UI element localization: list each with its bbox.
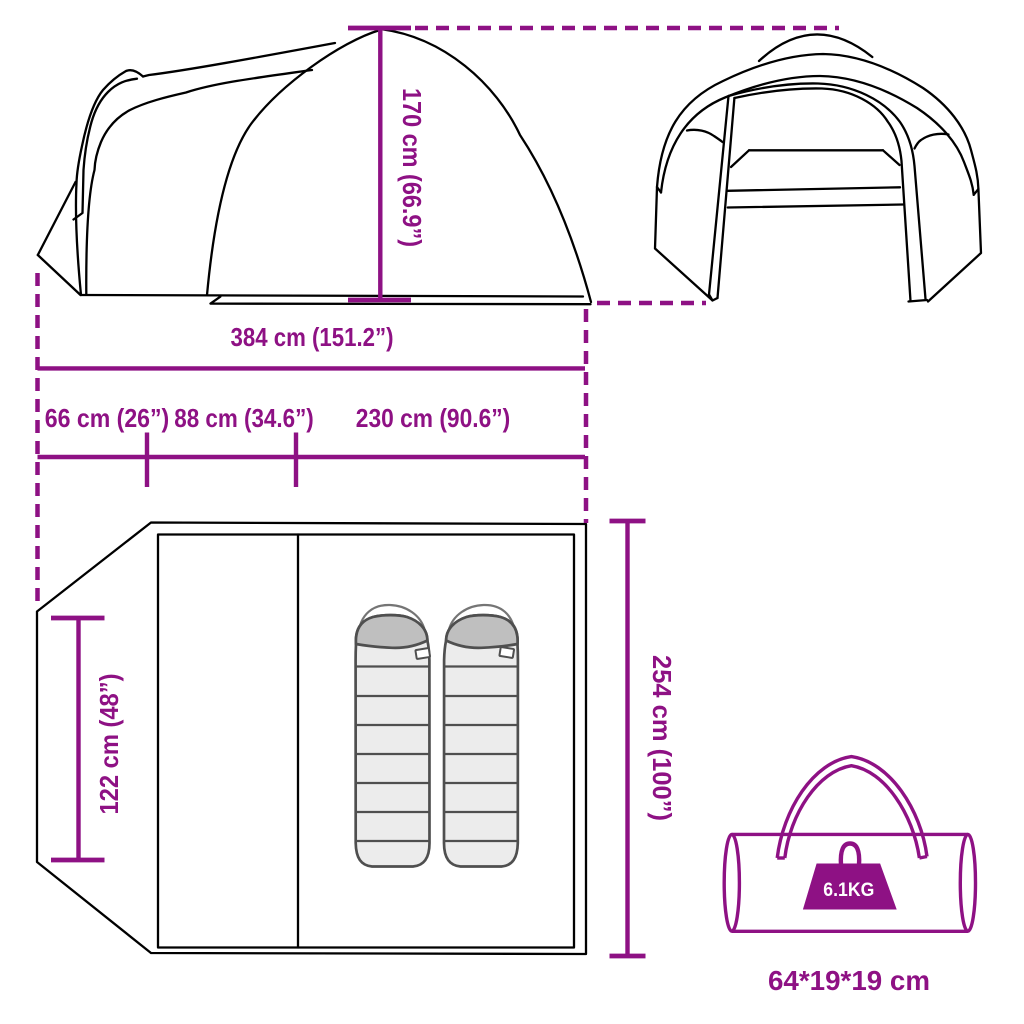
svg-text:254 cm (100”): 254 cm (100”) [647, 655, 677, 821]
svg-text:384 cm (151.2”): 384 cm (151.2”) [231, 322, 394, 352]
svg-text:64*19*19 cm: 64*19*19 cm [768, 965, 930, 996]
svg-text:170 cm (66.9”): 170 cm (66.9”) [397, 88, 427, 247]
svg-text:122 cm (48”): 122 cm (48”) [94, 674, 124, 815]
svg-text:88 cm (34.6”): 88 cm (34.6”) [174, 403, 314, 433]
svg-text:230 cm (90.6”): 230 cm (90.6”) [356, 403, 510, 433]
svg-text:6.1KG: 6.1KG [823, 880, 874, 901]
svg-text:66 cm (26”): 66 cm (26”) [45, 403, 170, 433]
